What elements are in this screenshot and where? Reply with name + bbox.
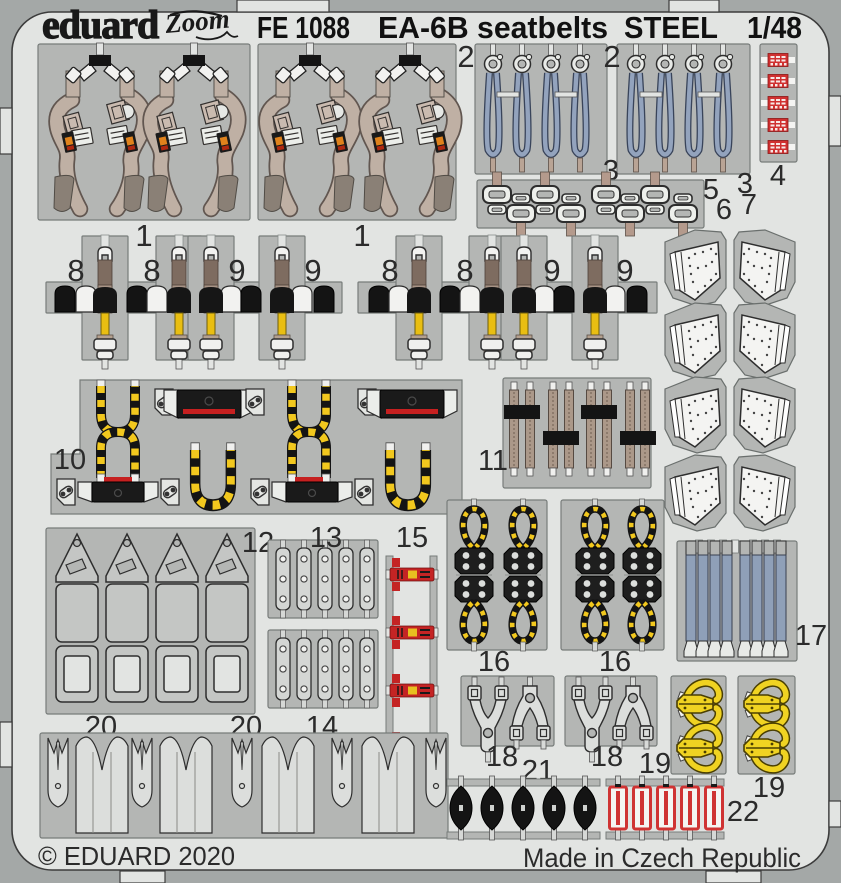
svg-text:1: 1: [135, 218, 152, 253]
svg-text:8: 8: [67, 253, 84, 288]
svg-text:13: 13: [310, 522, 342, 554]
svg-text:2: 2: [457, 39, 474, 74]
svg-text:© EDUARD 2020: © EDUARD 2020: [38, 841, 235, 871]
svg-text:Made in Czech Republic: Made in Czech Republic: [523, 843, 801, 873]
svg-text:19: 19: [639, 748, 671, 780]
svg-text:EA-6B seatbelts: EA-6B seatbelts: [378, 10, 608, 45]
svg-text:2: 2: [603, 39, 620, 74]
svg-text:1/48: 1/48: [747, 10, 802, 45]
svg-text:FE 1088: FE 1088: [257, 10, 350, 45]
svg-text:8: 8: [381, 253, 398, 288]
svg-text:eduard: eduard: [42, 2, 159, 47]
svg-text:STEEL: STEEL: [624, 10, 718, 45]
svg-text:Zoom: Zoom: [163, 3, 231, 39]
svg-text:6: 6: [716, 194, 732, 226]
svg-text:16: 16: [599, 646, 631, 678]
svg-text:18: 18: [591, 741, 623, 773]
svg-text:22: 22: [727, 796, 759, 828]
svg-text:18: 18: [486, 741, 518, 773]
svg-text:15: 15: [396, 522, 428, 554]
svg-text:9: 9: [304, 253, 321, 288]
svg-text:16: 16: [478, 646, 510, 678]
svg-text:8: 8: [456, 253, 473, 288]
svg-text:7: 7: [741, 189, 757, 221]
svg-text:1: 1: [353, 218, 370, 253]
svg-text:4: 4: [770, 160, 786, 192]
svg-text:9: 9: [228, 253, 245, 288]
svg-text:10: 10: [54, 444, 86, 476]
svg-text:9: 9: [616, 253, 633, 288]
svg-text:17: 17: [795, 620, 827, 652]
svg-text:9: 9: [543, 253, 560, 288]
svg-text:11: 11: [478, 445, 508, 477]
svg-text:8: 8: [143, 253, 160, 288]
